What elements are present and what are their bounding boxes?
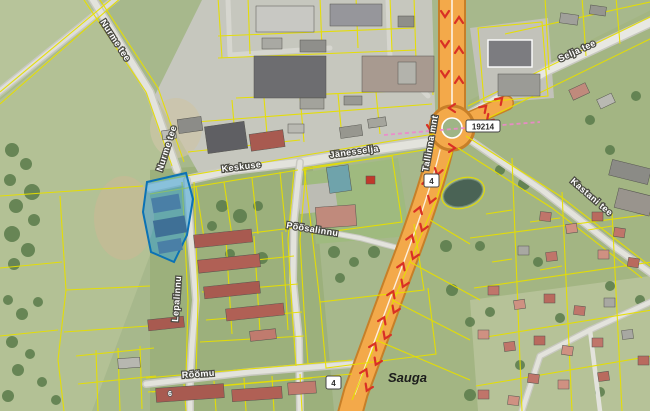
building	[627, 257, 639, 268]
building	[288, 381, 317, 395]
building	[592, 338, 603, 347]
building	[478, 330, 489, 339]
building	[544, 294, 555, 303]
building	[256, 6, 314, 32]
building	[254, 56, 326, 98]
aerial-cadastral-map[interactable]: 4 4 19214 Nurme tee Nurme tee Keskuse Jä…	[0, 0, 650, 411]
building	[118, 357, 141, 369]
building	[300, 40, 326, 52]
map-viewport[interactable]: 4 4 19214 Nurme tee Nurme tee Keskuse Jä…	[0, 0, 650, 411]
building	[592, 212, 603, 221]
building	[561, 345, 573, 355]
building	[513, 299, 525, 309]
building	[589, 5, 606, 16]
building	[504, 341, 516, 351]
building	[559, 13, 578, 25]
house-number-6: 6	[168, 391, 172, 398]
building	[288, 124, 304, 133]
building	[604, 298, 615, 307]
road-number-19214: 19214	[472, 123, 495, 132]
building	[204, 121, 247, 153]
building	[527, 373, 539, 383]
building	[566, 223, 578, 233]
building	[638, 356, 649, 365]
building	[597, 371, 609, 381]
building	[488, 286, 499, 295]
building	[546, 251, 558, 261]
place-label-sauga: Sauga	[388, 370, 427, 385]
building	[574, 305, 586, 315]
building	[613, 227, 625, 237]
building	[177, 116, 203, 133]
building	[622, 329, 634, 339]
building	[398, 62, 416, 84]
building	[300, 98, 324, 109]
playground	[366, 176, 375, 184]
road-number-4: 4	[429, 177, 434, 186]
road-badge-4-south: 4	[326, 376, 341, 389]
building	[498, 74, 540, 96]
building	[398, 16, 414, 27]
building	[330, 4, 382, 26]
building	[478, 390, 489, 399]
building	[558, 380, 569, 389]
building	[540, 211, 552, 221]
building	[598, 250, 609, 259]
building	[488, 40, 532, 67]
sports-court	[326, 165, 351, 194]
road-badge-19214: 19214	[466, 120, 500, 132]
building	[262, 38, 282, 49]
road-number-4: 4	[331, 379, 336, 388]
building	[344, 96, 362, 105]
building	[508, 395, 520, 405]
building	[534, 336, 545, 345]
road-badge-4-north: 4	[424, 174, 439, 187]
building	[518, 246, 529, 255]
